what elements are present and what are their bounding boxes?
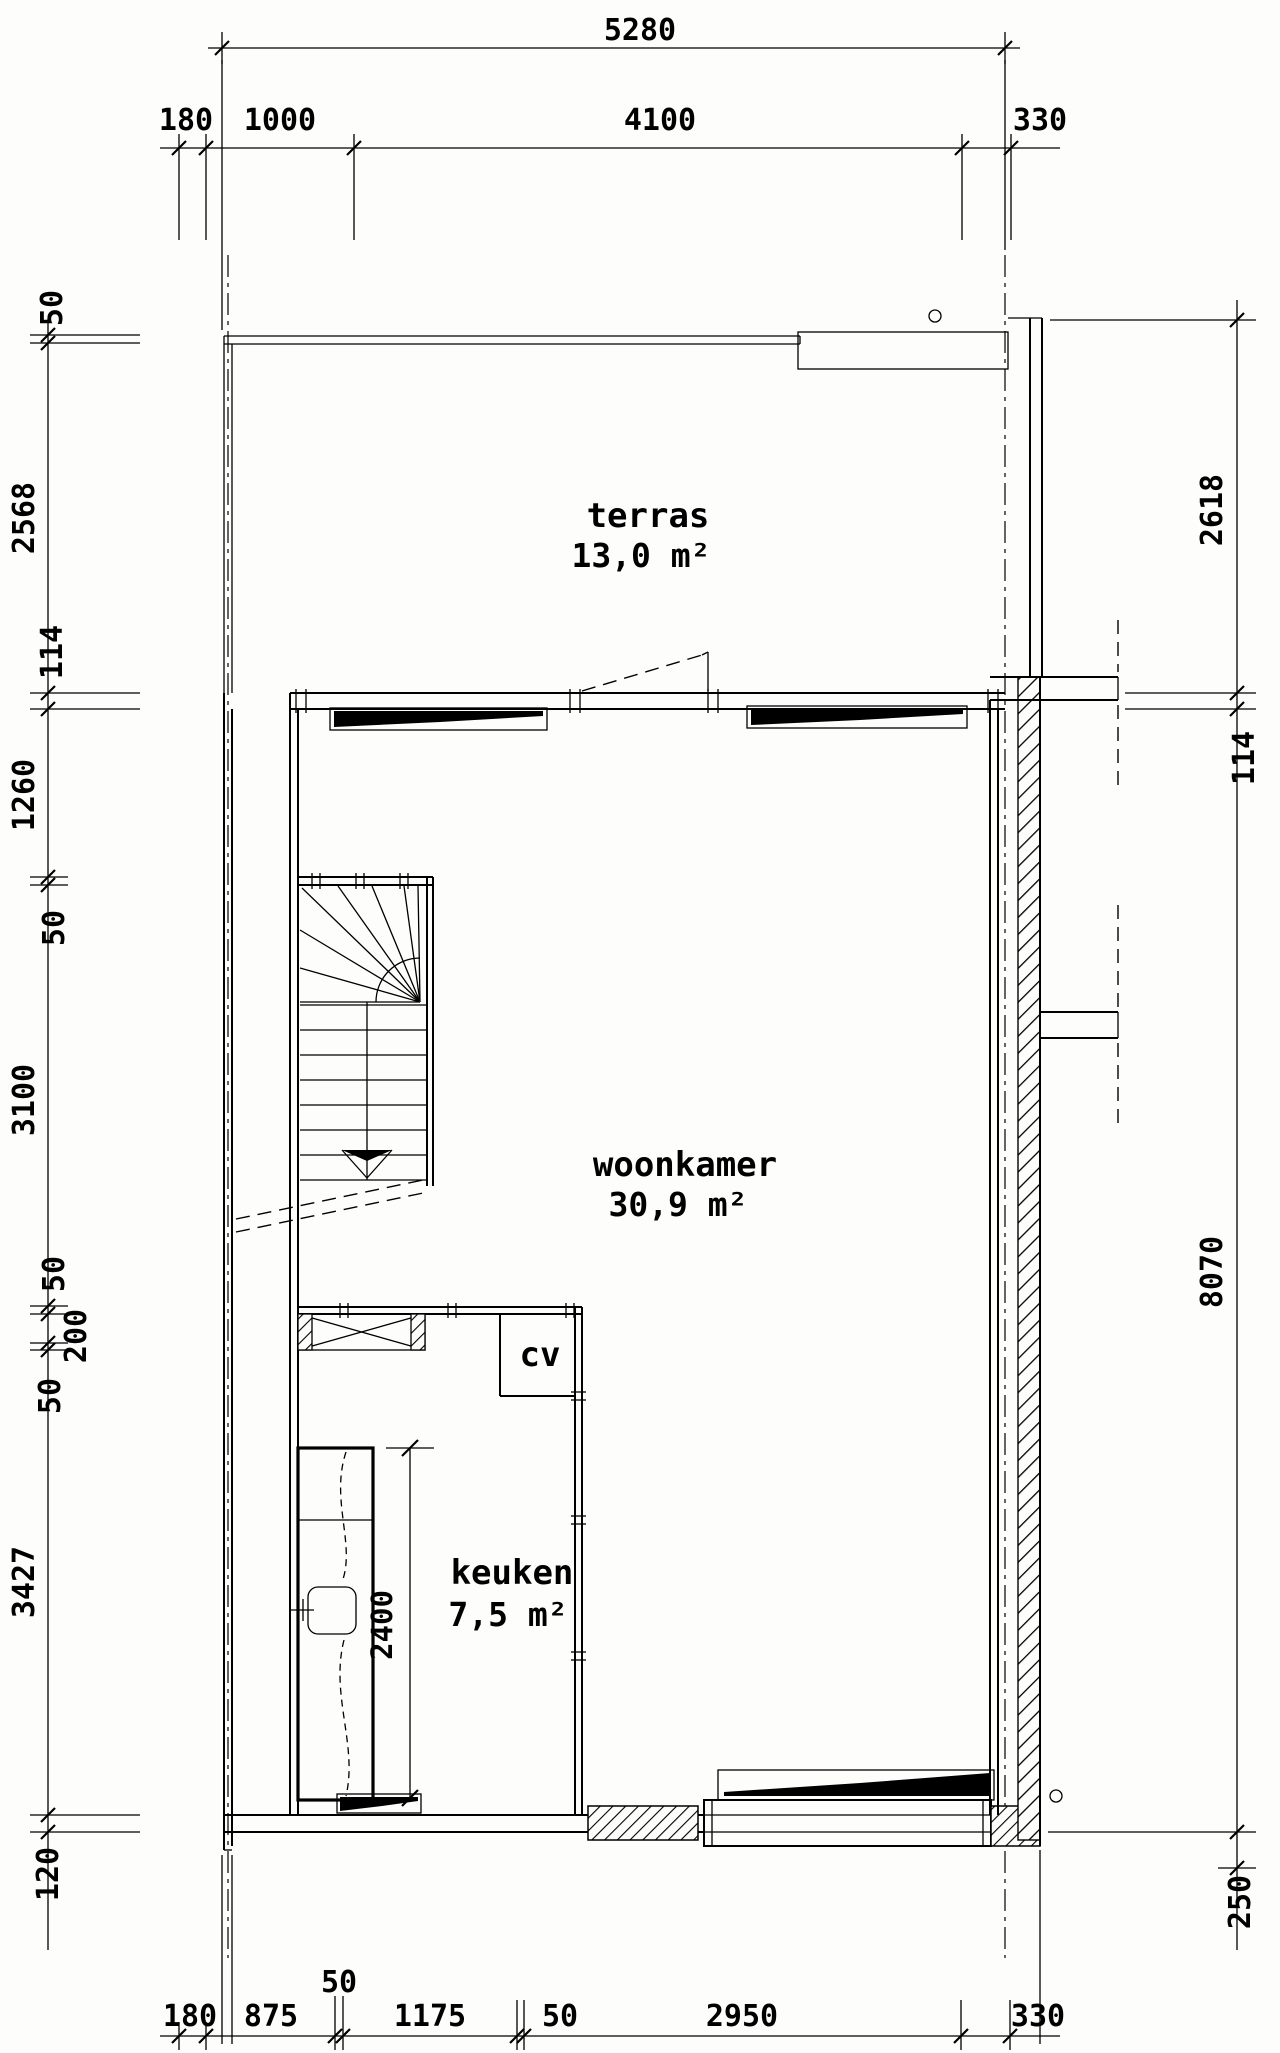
dim-left-stubs (30, 335, 140, 1832)
room-area-keuken: 7,5 m² (448, 1595, 567, 1634)
dim-left-120: 120 (31, 1847, 66, 1901)
kitchen-sink (308, 1587, 356, 1634)
dim-left-1260: 1260 (7, 759, 42, 831)
stair-cut-lines (236, 1179, 428, 1232)
east-wall-stub (1040, 905, 1118, 1125)
radiator-north-left (330, 708, 547, 730)
dim-bottom-50a: 50 (321, 1965, 357, 2000)
terrace-screen (798, 332, 1008, 369)
dim-left-50c: 50 (37, 1256, 72, 1292)
sink-tap-icon (291, 1599, 314, 1621)
floorplan-sheet: 2400 (0, 0, 1280, 2053)
stair-winders (300, 886, 420, 1002)
dim-bottom: 180 875 50 1175 50 2950 330 (160, 1850, 1065, 2050)
partition-posts (340, 1303, 574, 1318)
dim-bottom-330: 330 (1011, 1999, 1065, 2034)
dim-left-50b: 50 (37, 910, 72, 946)
dim-counter-2400: 2400 (365, 1590, 399, 1660)
dim-top-1000: 1000 (244, 103, 316, 138)
dim-bottom-2950: 2950 (706, 1999, 778, 2034)
kitchen-counter: 2400 (291, 1440, 434, 1806)
east-wall (990, 620, 1118, 1846)
dim-top-chain-stubs (179, 60, 1011, 330)
dim-left-50a: 50 (35, 290, 70, 326)
dim-right-8070: 8070 (1195, 1236, 1230, 1308)
stair-wall-posts (312, 873, 408, 889)
east-wall-masonry (1018, 677, 1040, 1840)
dim-bottom-875: 875 (244, 1999, 298, 2034)
dim-left-3427: 3427 (7, 1546, 42, 1618)
dim-left-2568: 2568 (7, 482, 42, 554)
dim-top-330: 330 (1013, 103, 1067, 138)
cupboard (298, 1314, 425, 1350)
dim-bottom-stubs (179, 1850, 1040, 2050)
masonry-pier (588, 1806, 698, 1840)
dim-right-stubs (1048, 320, 1256, 1868)
counter-break-line (340, 1640, 349, 1796)
room-label-terras: terras (587, 496, 710, 536)
room-labels: terras 13,0 m² woonkamer 30,9 m² keuken … (448, 496, 777, 1634)
downspout-icon (1050, 1790, 1062, 1802)
dim-bottom-1175: 1175 (394, 1999, 466, 2034)
dim-bottom-50b: 50 (542, 1999, 578, 2034)
west-wall (224, 693, 298, 1850)
south-wall (224, 1770, 1062, 1846)
downspout-icon (929, 310, 941, 322)
dim-left-50d: 50 (33, 1378, 68, 1414)
dim-top: 5280 180 1000 4100 330 (159, 13, 1067, 330)
north-facade (290, 652, 1005, 730)
dim-top-4100: 4100 (624, 103, 696, 138)
terrace-door-swing (582, 652, 708, 691)
label-cv: cv (520, 1335, 561, 1375)
dim-left-3100: 3100 (7, 1064, 42, 1136)
dim-bottom-180: 180 (163, 1999, 217, 2034)
staircase (236, 873, 433, 1232)
dim-left-200: 200 (59, 1309, 94, 1363)
kitchen-wall-posts (571, 1392, 586, 1660)
radiator-north-right (747, 706, 967, 728)
dim-right-114: 114 (1227, 731, 1262, 785)
floorplan-drawing: 2400 (0, 0, 1280, 2053)
radiator-kitchen (337, 1794, 421, 1813)
counter-dimension: 2400 (365, 1440, 434, 1806)
room-label-keuken: keuken (451, 1553, 574, 1593)
dim-left: 50 2568 114 1260 50 3100 50 200 50 3427 … (7, 290, 140, 1950)
dim-top-180: 180 (159, 103, 213, 138)
south-window (704, 1800, 991, 1846)
dim-right-250: 250 (1223, 1875, 1258, 1929)
room-label-woonkamer: woonkamer (593, 1145, 777, 1185)
dim-top-total: 5280 (604, 13, 676, 48)
dim-right-2618: 2618 (1195, 474, 1230, 546)
radiator-south (718, 1770, 994, 1800)
dim-left-114: 114 (35, 625, 70, 679)
room-area-terras: 13,0 m² (571, 536, 710, 575)
counter-break-line (341, 1452, 347, 1582)
room-area-woonkamer: 30,9 m² (608, 1185, 747, 1224)
dim-right: 2618 114 8070 250 (1048, 300, 1262, 1950)
